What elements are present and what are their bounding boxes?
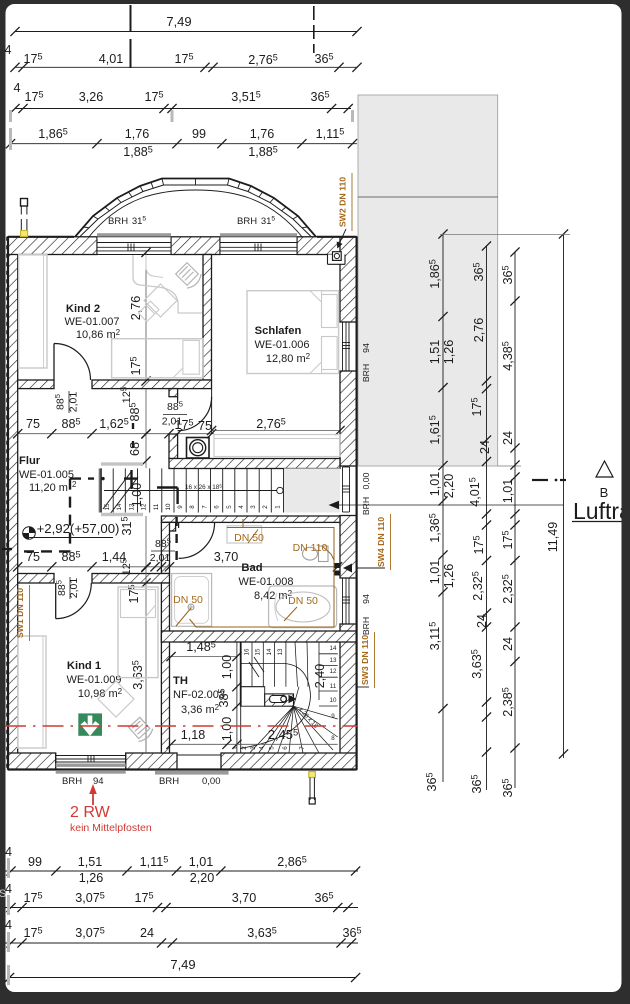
svg-text:3,36 m2: 3,36 m2 <box>181 703 220 716</box>
svg-text:1,01: 1,01 <box>428 472 442 497</box>
svg-text:99: 99 <box>192 127 206 141</box>
svg-text:2: 2 <box>262 505 269 509</box>
svg-text:1: 1 <box>274 505 281 509</box>
svg-text:94: 94 <box>361 343 371 353</box>
svg-text:3,70: 3,70 <box>232 891 257 905</box>
svg-text:8: 8 <box>331 735 335 742</box>
svg-text:1,18: 1,18 <box>181 728 206 742</box>
svg-text:5: 5 <box>269 746 276 750</box>
svg-text:6: 6 <box>282 746 289 750</box>
svg-text:15: 15 <box>255 648 262 655</box>
svg-text:11: 11 <box>153 503 160 510</box>
svg-text:4: 4 <box>5 882 12 896</box>
svg-text:7,49: 7,49 <box>166 14 191 29</box>
svg-text:11,49: 11,49 <box>546 522 560 553</box>
svg-text:2,40: 2,40 <box>313 664 327 689</box>
svg-text:12,80 m2: 12,80 m2 <box>266 352 311 365</box>
svg-text:Kind 1: Kind 1 <box>67 660 101 672</box>
svg-text:1,00: 1,00 <box>220 717 234 742</box>
svg-text:4: 4 <box>5 918 12 932</box>
svg-text:9: 9 <box>177 505 184 509</box>
svg-text:2,20: 2,20 <box>190 871 215 885</box>
svg-text:8: 8 <box>189 505 196 509</box>
svg-text:9: 9 <box>331 713 335 720</box>
svg-text:2,01: 2,01 <box>150 552 171 564</box>
svg-text:DN 50: DN 50 <box>288 595 318 607</box>
svg-text:2,76: 2,76 <box>129 296 143 321</box>
svg-text:WE-01.005: WE-01.005 <box>19 469 74 481</box>
svg-text:SW3 DN 110: SW3 DN 110 <box>360 635 370 685</box>
svg-text:kein Mittelpfosten: kein Mittelpfosten <box>70 822 152 834</box>
svg-text:0,00: 0,00 <box>361 472 371 489</box>
svg-text:99: 99 <box>28 855 42 869</box>
svg-text:2 RW: 2 RW <box>70 804 111 821</box>
svg-text:12: 12 <box>141 503 148 510</box>
svg-text:1,01: 1,01 <box>189 855 214 869</box>
svg-text:2: 2 <box>72 480 77 489</box>
svg-text:3,26: 3,26 <box>79 90 104 104</box>
svg-text:68: 68 <box>128 442 142 456</box>
svg-text:Flur: Flur <box>19 455 41 467</box>
svg-text:SW2 DN 110: SW2 DN 110 <box>338 177 348 227</box>
svg-text:10: 10 <box>165 503 172 510</box>
svg-text:13: 13 <box>277 648 284 655</box>
svg-text:7: 7 <box>201 505 208 509</box>
svg-text:16 x 26 x 185: 16 x 26 x 185 <box>185 483 222 491</box>
svg-text:75: 75 <box>26 417 40 431</box>
svg-text:3: 3 <box>250 746 257 750</box>
svg-text:4: 4 <box>5 845 12 859</box>
svg-text:11: 11 <box>330 683 337 690</box>
svg-text:TH: TH <box>173 675 188 687</box>
svg-text:24: 24 <box>140 926 154 940</box>
svg-text:DN 110: DN 110 <box>293 542 328 554</box>
svg-text:1,76: 1,76 <box>125 127 150 141</box>
svg-text:+2,92(+57,00): +2,92(+57,00) <box>37 521 120 536</box>
svg-text:24: 24 <box>475 614 489 628</box>
svg-text:10: 10 <box>330 697 337 704</box>
svg-text:BRH: BRH <box>361 364 371 382</box>
svg-text:DN 50: DN 50 <box>234 532 264 544</box>
svg-text:SW1 DN 110: SW1 DN 110 <box>15 588 25 638</box>
svg-text:16: 16 <box>243 648 250 655</box>
svg-text:1,26: 1,26 <box>442 564 456 589</box>
svg-text:WE-01.006: WE-01.006 <box>254 339 309 351</box>
svg-text:12: 12 <box>330 668 337 675</box>
svg-text:1,01: 1,01 <box>501 479 515 504</box>
svg-text:Kind 2: Kind 2 <box>66 303 100 315</box>
svg-text:1,00: 1,00 <box>220 655 234 680</box>
svg-text:1,51: 1,51 <box>78 855 103 869</box>
svg-text:4: 4 <box>238 505 245 509</box>
svg-text:14: 14 <box>330 645 337 652</box>
svg-text:BRH: BRH <box>108 216 128 227</box>
svg-text:2,20: 2,20 <box>442 474 456 499</box>
svg-text:2,76: 2,76 <box>472 318 486 343</box>
svg-text:5: 5 <box>226 505 233 509</box>
svg-text:14: 14 <box>266 648 273 655</box>
svg-text:Bad: Bad <box>241 562 262 574</box>
svg-text:2,01: 2,01 <box>68 392 80 413</box>
svg-text:7: 7 <box>299 746 306 750</box>
svg-text:WE-01.007: WE-01.007 <box>64 316 119 328</box>
svg-text:Luftra: Luftra <box>573 498 630 524</box>
svg-text:1,51: 1,51 <box>428 340 442 365</box>
svg-text:2: 2 <box>241 746 248 750</box>
svg-text:13: 13 <box>330 657 337 664</box>
svg-text:4: 4 <box>4 43 11 57</box>
svg-text:24: 24 <box>501 637 515 651</box>
svg-text:6: 6 <box>214 505 221 509</box>
svg-text:DN 50: DN 50 <box>173 594 203 606</box>
svg-text:4: 4 <box>259 746 266 750</box>
svg-text:2,01: 2,01 <box>162 416 183 428</box>
svg-text:94: 94 <box>361 594 371 604</box>
svg-text:94: 94 <box>93 776 104 787</box>
svg-text:24: 24 <box>501 431 515 445</box>
svg-text:75: 75 <box>198 419 212 433</box>
svg-text:BRH: BRH <box>62 776 82 787</box>
svg-text:10,98 m2: 10,98 m2 <box>78 687 123 700</box>
svg-text:75: 75 <box>26 550 40 564</box>
svg-text:1,26: 1,26 <box>79 871 104 885</box>
svg-text:7,49: 7,49 <box>170 957 195 972</box>
svg-text:BRH: BRH <box>237 216 257 227</box>
svg-text:BRH: BRH <box>159 776 179 787</box>
svg-text:4,01: 4,01 <box>99 52 124 66</box>
svg-text:1,01: 1,01 <box>428 560 442 585</box>
svg-text:1,44: 1,44 <box>102 550 127 564</box>
svg-text:3,70: 3,70 <box>214 550 239 564</box>
svg-text:24: 24 <box>478 440 492 454</box>
svg-text:2,01: 2,01 <box>68 578 80 599</box>
svg-text:3: 3 <box>250 505 257 509</box>
svg-text:11,20 m: 11,20 m <box>29 482 68 494</box>
svg-text:BRH: BRH <box>361 497 371 515</box>
svg-text:Schlafen: Schlafen <box>255 325 302 337</box>
svg-text:4: 4 <box>13 81 20 95</box>
svg-text:BRH: BRH <box>361 617 371 635</box>
svg-text:13: 13 <box>128 503 135 510</box>
svg-text:1,76: 1,76 <box>250 127 275 141</box>
svg-text:1,26: 1,26 <box>442 340 456 365</box>
svg-text:SW4 DN 110: SW4 DN 110 <box>376 517 386 567</box>
svg-text:0,00: 0,00 <box>202 776 221 787</box>
